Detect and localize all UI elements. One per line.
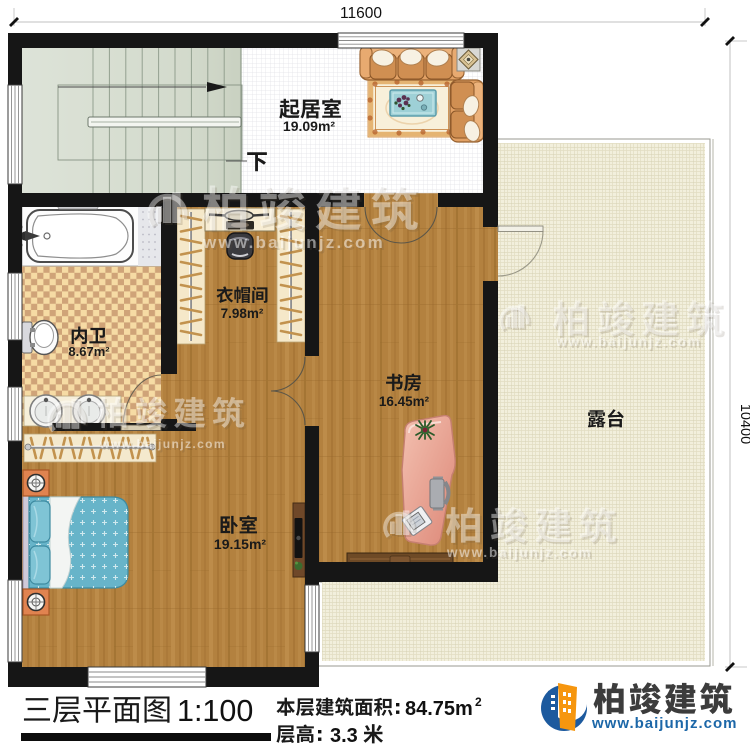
svg-text:84.75m: 84.75m — [405, 698, 473, 720]
svg-text:www.baijunjz.com: www.baijunjz.com — [202, 233, 385, 252]
svg-text:3.3: 3.3 — [330, 725, 358, 747]
svg-text:16.45m²: 16.45m² — [379, 394, 430, 409]
svg-text:www.baijunjz.com: www.baijunjz.com — [99, 437, 226, 451]
svg-text:19.15m²: 19.15m² — [214, 536, 266, 552]
svg-text:19.09m²: 19.09m² — [283, 118, 335, 134]
svg-text:www.baijunjz.com: www.baijunjz.com — [555, 334, 701, 349]
svg-text:7.98m²: 7.98m² — [221, 306, 264, 321]
svg-text:10400: 10400 — [737, 404, 750, 444]
svg-text:11600: 11600 — [340, 5, 382, 22]
svg-text:8.67m²: 8.67m² — [68, 344, 110, 359]
svg-text:1:100: 1:100 — [177, 694, 253, 728]
svg-text:www.baijunjz.com: www.baijunjz.com — [591, 715, 737, 732]
svg-text:www.baijunjz.com: www.baijunjz.com — [446, 545, 592, 560]
svg-text:2: 2 — [475, 695, 482, 709]
